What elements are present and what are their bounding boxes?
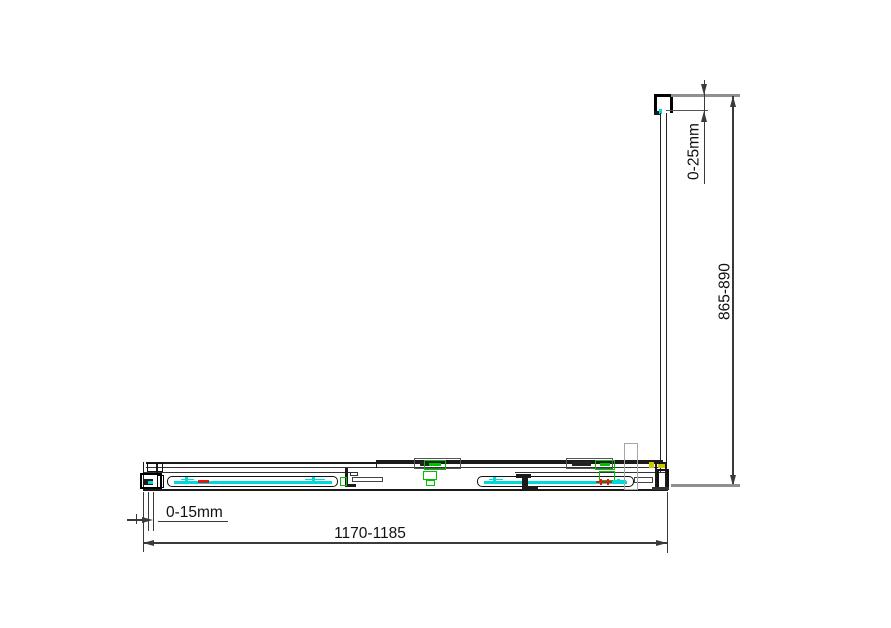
- roller-1-hanger: [423, 471, 437, 480]
- extension-line-corner: [667, 492, 668, 553]
- center-clamp-bottom: [524, 486, 538, 490]
- dim-depth-arrow-top: [730, 96, 736, 107]
- glass-panel-vertical: [660, 113, 667, 472]
- left-rail-bracket: [147, 463, 163, 472]
- extension-line-c: [153, 492, 154, 531]
- dim-depth-label: 865-890: [717, 251, 732, 331]
- glass-annotation-1a: [181, 479, 194, 481]
- dim-top-adjust-arrow-down: [701, 84, 707, 95]
- stopper-guide-green: [340, 477, 347, 486]
- roller-2-wheel-core: [600, 463, 610, 466]
- marker-red-2-v1: [600, 479, 602, 486]
- handle-outline: [624, 443, 638, 490]
- roller-1-tab: [426, 480, 435, 486]
- wall-profile-left-seal-mark: [148, 481, 153, 484]
- bottom-reference-line: [671, 484, 740, 487]
- corner-bottom-edge: [652, 487, 669, 490]
- rail-bottom-line-left: [143, 472, 352, 473]
- roller-1-wheel-core: [429, 463, 441, 466]
- dim-left-adjust-tick: [136, 514, 137, 524]
- drawing-canvas: 0-25mm 865-890: [0, 0, 891, 628]
- rail-bottom-line-right: [515, 472, 667, 473]
- dim-top-adjust-line: [704, 80, 705, 184]
- marker-yellow-1: [649, 462, 654, 468]
- roller-2-bar: [572, 461, 591, 466]
- left-rail-bracket-divider: [156, 463, 158, 473]
- dim-width-line: [143, 542, 667, 543]
- glass-annotation-2b: [312, 477, 315, 483]
- dim-width-label: 1170-1185: [330, 526, 410, 541]
- glass-annotation-4b: [617, 479, 620, 485]
- marker-red-1: [198, 480, 209, 483]
- wall-profile-left-step: [157, 475, 164, 488]
- extension-line-b: [148, 492, 149, 531]
- dim-left-adjust-label: 0-15mm: [166, 505, 223, 520]
- back-rail-step: [376, 460, 378, 468]
- glass-annotation-2a: [305, 479, 325, 481]
- marker-red-2-h: [596, 481, 612, 483]
- glass-annotation-3a: [489, 479, 503, 481]
- dim-top-adjust-label: 0-25mm: [687, 111, 702, 191]
- lower-strip-left: [352, 477, 383, 483]
- dim-left-adjust-underline: [158, 521, 228, 522]
- dim-top-adjust-arrow-up: [701, 111, 707, 122]
- assembly-bottom-line: [143, 489, 668, 491]
- marker-red-2-v2: [607, 479, 609, 486]
- dim-width-arrow-right: [656, 540, 667, 546]
- glass-annotation-3b: [493, 477, 496, 483]
- marker-yellow-2: [658, 464, 665, 468]
- glass-annotation-1b: [185, 477, 188, 483]
- stopper-step: [350, 472, 358, 477]
- dim-width-arrow-left: [143, 540, 154, 546]
- dim-left-adjust-arrow: [142, 517, 153, 523]
